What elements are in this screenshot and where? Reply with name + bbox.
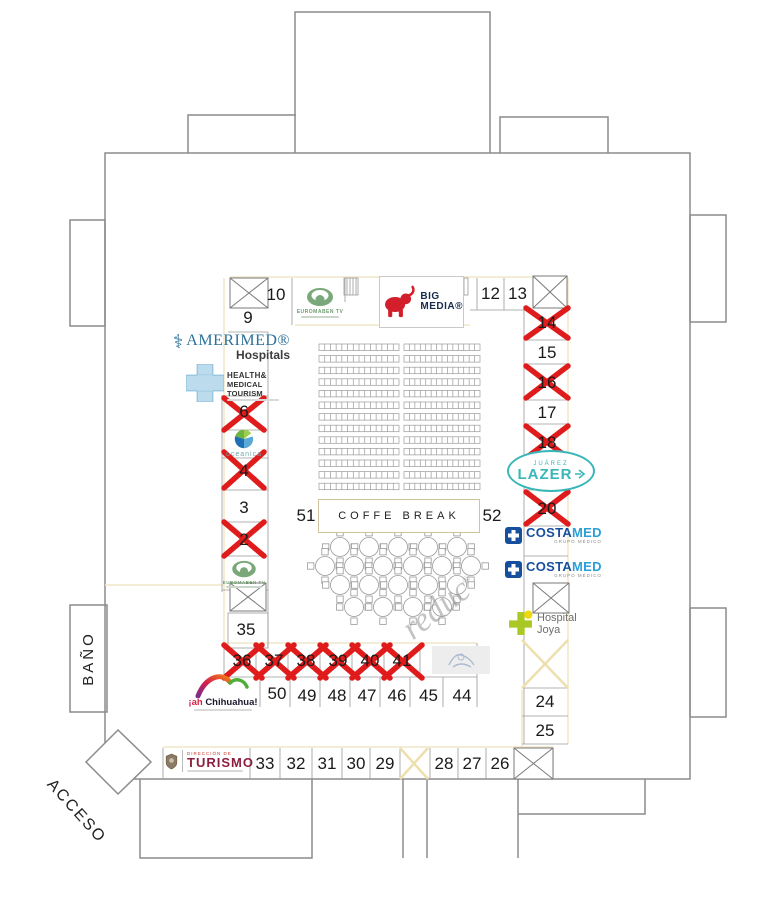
booth-38: 38 (290, 651, 322, 671)
booth-20: 20 (526, 499, 568, 519)
euromaben-tv-label: EUROMABEN TV (297, 309, 344, 315)
booth-4: 4 (224, 461, 264, 481)
faded-emblem-icon (441, 649, 481, 671)
oceanica-label: oceanica (226, 451, 262, 458)
booth-12: 12 (477, 284, 504, 304)
booth-49: 49 (292, 686, 322, 706)
booth-17: 17 (526, 403, 568, 423)
costamed-part2: MED (572, 525, 602, 540)
booth-26: 26 (486, 754, 514, 774)
booth-13: 13 (504, 284, 531, 304)
hmt-tagline-bar (227, 399, 279, 401)
booth-47: 47 (352, 686, 382, 706)
bano-room-label: BAÑO (70, 605, 107, 712)
costamed-part2: MED (572, 559, 602, 574)
ah-chihuahua-logo: ¡ah Chihuahua! (186, 664, 260, 716)
chihuahua-tagline-bar (194, 709, 252, 711)
booth-50: 50 (260, 684, 294, 704)
booth-48: 48 (322, 686, 352, 706)
expo-floor-plan: 9 10 12 13 14 15 16 17 18 20 24 25 26 27… (0, 0, 768, 902)
amerimed-sub: Hospitals (186, 349, 290, 362)
chihuahua-prefix: ¡ah (188, 697, 202, 708)
chihuahua-arc-icon (194, 670, 252, 698)
coffe-break-area: COFFE BREAK (318, 499, 480, 533)
costamed-part1: COSTA (526, 525, 572, 540)
booth-33: 33 (250, 754, 280, 774)
booth-37: 37 (258, 651, 290, 671)
booth-24: 24 (522, 692, 568, 712)
costamed-cross-icon (505, 561, 522, 578)
lazer-arrow-icon (575, 469, 585, 479)
booth-31: 31 (312, 754, 342, 774)
turismo-divider (182, 750, 183, 772)
hmt-line1: HEALTH& (227, 371, 293, 380)
juarez-lazer-logo: JUÁREZ LAZER (507, 450, 595, 492)
big-media-booth: BIG MEDIA® (379, 276, 464, 328)
booth-15: 15 (526, 343, 568, 363)
booth-35: 35 (226, 620, 266, 640)
booth-14: 14 (526, 313, 568, 333)
medical-cross-icon (186, 364, 224, 402)
faded-emblem (432, 646, 490, 674)
booth-29: 29 (370, 754, 400, 774)
booth-9: 9 (228, 308, 268, 328)
amerimed-logo: ⚕ AMERIMED® Hospitals (173, 333, 285, 362)
booth-16: 16 (526, 373, 568, 393)
oceanica-logo: oceanica (224, 428, 264, 458)
booth-39: 39 (322, 651, 354, 671)
caduceus-icon: ⚕ (173, 333, 183, 352)
oceanica-pie-icon (233, 428, 255, 450)
turismo-logo: DIRECCIÓN DE TURISMO (165, 750, 254, 772)
euromaben-eye-icon (306, 287, 334, 308)
booth-2: 2 (224, 530, 264, 550)
hospital-joya-logo: Hospital Joya (508, 610, 577, 637)
hmt-line2: MEDICAL TOURISM (227, 380, 293, 398)
booth-32: 32 (280, 754, 312, 774)
euromaben-tv-logo-left: EUROMABEN TV (222, 556, 266, 592)
costamed-logo: COSTAMED GRUPO MÉDICO (505, 560, 602, 578)
booth-45: 45 (412, 686, 445, 706)
big-media-line2: MEDIA® (420, 302, 463, 312)
booth-52: 52 (480, 506, 504, 526)
turismo-crest-icon (165, 753, 178, 770)
booth-46: 46 (382, 686, 412, 706)
booth-28: 28 (430, 754, 458, 774)
booth-3: 3 (224, 498, 264, 518)
audience-seat-rows (319, 344, 480, 490)
booth-10: 10 (260, 285, 292, 305)
bano-text: BAÑO (80, 631, 97, 686)
booth-44: 44 (445, 686, 479, 706)
euromaben-tagline-bar (301, 316, 339, 318)
booth-51: 51 (294, 506, 318, 526)
booth-27: 27 (458, 754, 486, 774)
joya-line1: Hospital (537, 612, 577, 624)
coffe-break-label: COFFE BREAK (338, 510, 460, 522)
booth-25: 25 (522, 721, 568, 741)
euromaben-tv-label: EUROMABEN TV (223, 580, 266, 585)
euromaben-eye-icon (231, 560, 257, 579)
booth-40: 40 (354, 651, 386, 671)
costamed-cross-icon (505, 527, 522, 544)
chihuahua-name: Chihuahua! (205, 697, 257, 708)
joya-line2: Joya (537, 624, 577, 636)
hospital-joya-icon (508, 610, 533, 637)
turismo-tagline-bar (187, 770, 243, 772)
booth-41: 41 (386, 651, 418, 671)
costamed-part1: COSTA (526, 559, 572, 574)
building-walls (70, 12, 726, 858)
costamed-logo: COSTAMED GRUPO MÉDICO (505, 526, 602, 544)
health-medical-tourism-logo: HEALTH& MEDICAL TOURISM (227, 371, 293, 401)
turismo-main: TURISMO (187, 756, 254, 769)
amerimed-name: AMERIMED® (186, 333, 290, 349)
euromaben-tagline-bar (226, 586, 261, 588)
booth-6: 6 (224, 402, 264, 422)
booth-30: 30 (342, 754, 370, 774)
big-media-elephant-icon (380, 283, 416, 321)
lazer-main-label: LAZER (518, 467, 573, 482)
euromaben-tv-logo-top: EUROMABEN TV (296, 280, 344, 324)
